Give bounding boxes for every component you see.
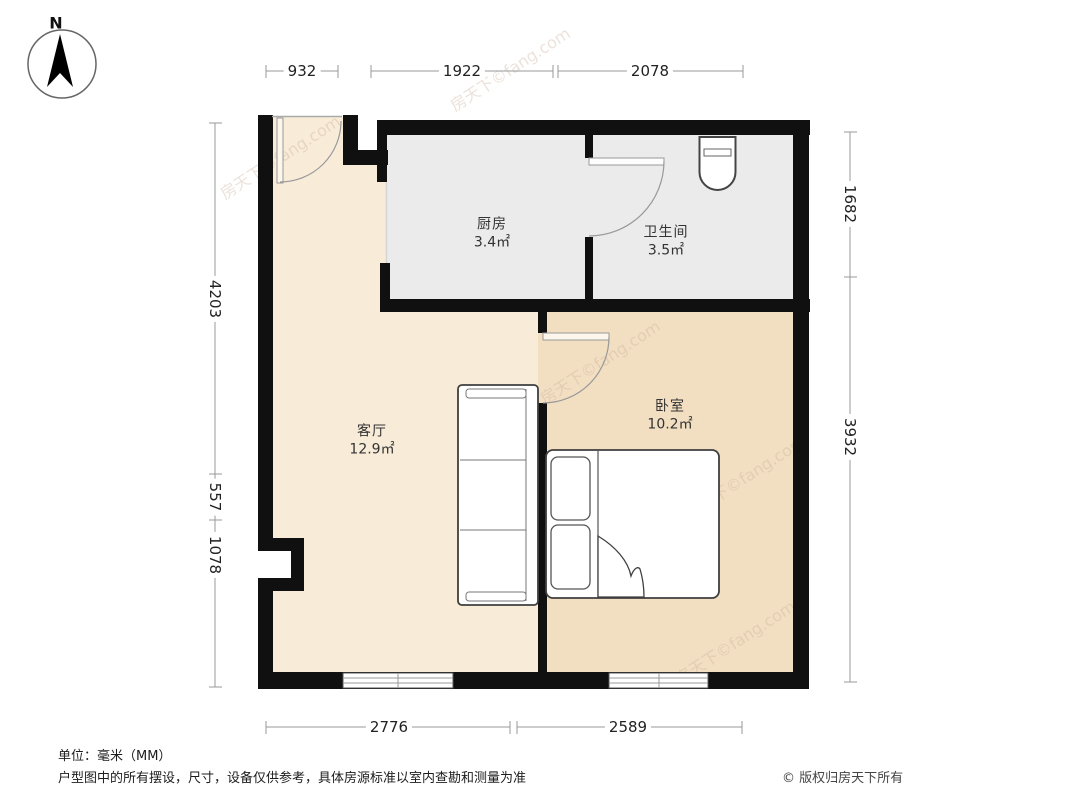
wall-top xyxy=(377,120,810,135)
wall-kitchen-bath-lower xyxy=(585,237,593,301)
dim-top-1: 932 xyxy=(284,62,321,80)
exterior-gap xyxy=(358,108,377,152)
wall-kitchen-left-upper xyxy=(377,133,387,182)
dim-bottom-2: 2589 xyxy=(605,718,651,736)
sofa xyxy=(458,385,538,605)
room-name: 厨房 xyxy=(474,217,510,235)
room-area: 3.4㎡ xyxy=(474,234,510,252)
room-name: 卫生间 xyxy=(644,225,689,243)
bed-pillow xyxy=(551,525,590,589)
room-area: 10.2㎡ xyxy=(647,416,692,434)
bed-pillow xyxy=(551,457,590,520)
room-area: 3.5㎡ xyxy=(644,242,689,260)
wall-kitchen-left-lower xyxy=(380,263,390,303)
room-label-living: 客厅 12.9㎡ xyxy=(349,424,394,459)
floorplan-drawing: 房天下©fang.com 房天下©fang.com 房天下©fang.com 房… xyxy=(0,0,1066,800)
floorplan-canvas: 房天下©fang.com 房天下©fang.com 房天下©fang.com 房… xyxy=(0,0,1066,800)
wall-recess xyxy=(238,551,291,578)
room-name: 卧室 xyxy=(647,399,692,417)
toilet-bowl xyxy=(700,137,736,190)
unit-note: 单位：毫米（MM） xyxy=(58,745,171,764)
bedroom-door-leaf xyxy=(543,333,609,340)
toilet xyxy=(700,137,736,190)
dim-left-1: 4203 xyxy=(206,276,224,322)
dim-left-3: 1078 xyxy=(206,532,224,578)
entry-door-leaf xyxy=(277,118,283,183)
room-area: 12.9㎡ xyxy=(349,441,394,459)
dim-top-3: 2078 xyxy=(627,62,673,80)
dim-right-1: 1682 xyxy=(841,181,859,227)
wall-living-bedroom-upper xyxy=(538,299,547,333)
dim-top-2: 1922 xyxy=(439,62,485,80)
compass xyxy=(28,30,96,98)
wall-notch-bottom xyxy=(258,578,304,591)
bed xyxy=(546,450,719,598)
room-name: 客厅 xyxy=(349,424,394,442)
dim-left-2: 557 xyxy=(206,479,224,516)
wall-bottom xyxy=(258,672,809,689)
compass-north-label: N xyxy=(49,14,62,33)
wall-kitchen-bath-upper xyxy=(585,135,593,158)
copyright: © 版权归房天下所有 xyxy=(782,767,903,786)
compass-needle-icon xyxy=(47,34,73,87)
disclaimer: 户型图中的所有摆设，尺寸，设备仅供参考，具体房源标准以室内查勘和测量为准 xyxy=(58,767,526,786)
bathroom-door-leaf xyxy=(589,158,664,165)
window-living xyxy=(343,673,453,688)
room-label-bathroom: 卫生间 3.5㎡ xyxy=(644,225,689,260)
wall-left-upper xyxy=(258,115,273,538)
wall-left-lower xyxy=(258,590,273,675)
room-label-bedroom: 卧室 10.2㎡ xyxy=(647,399,692,434)
room-label-kitchen: 厨房 3.4㎡ xyxy=(474,217,510,252)
dim-bottom-1: 2776 xyxy=(366,718,412,736)
window-bedroom xyxy=(609,673,708,688)
wall-right xyxy=(793,120,809,689)
dim-right-2: 3932 xyxy=(841,414,859,460)
wall-mid-horizontal xyxy=(380,299,810,312)
